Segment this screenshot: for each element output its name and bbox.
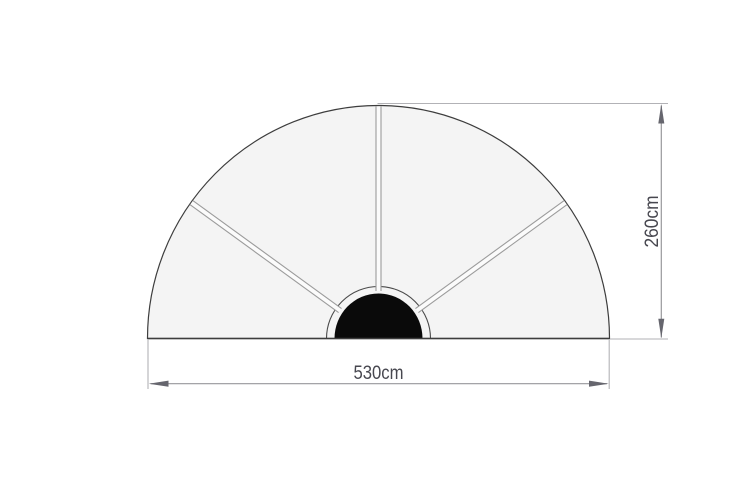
height-dimension-label: 260cm (642, 196, 663, 248)
dimension-diagram: 530cm 260cm (0, 0, 746, 500)
width-arrow-right (589, 381, 609, 387)
diagram-svg: 530cm 260cm (0, 0, 746, 500)
height-arrow-bottom (658, 319, 664, 339)
width-dimension-label: 530cm (354, 363, 404, 384)
rib-center (376, 106, 381, 291)
width-arrow-left (149, 381, 169, 387)
height-arrow-top (658, 104, 664, 124)
